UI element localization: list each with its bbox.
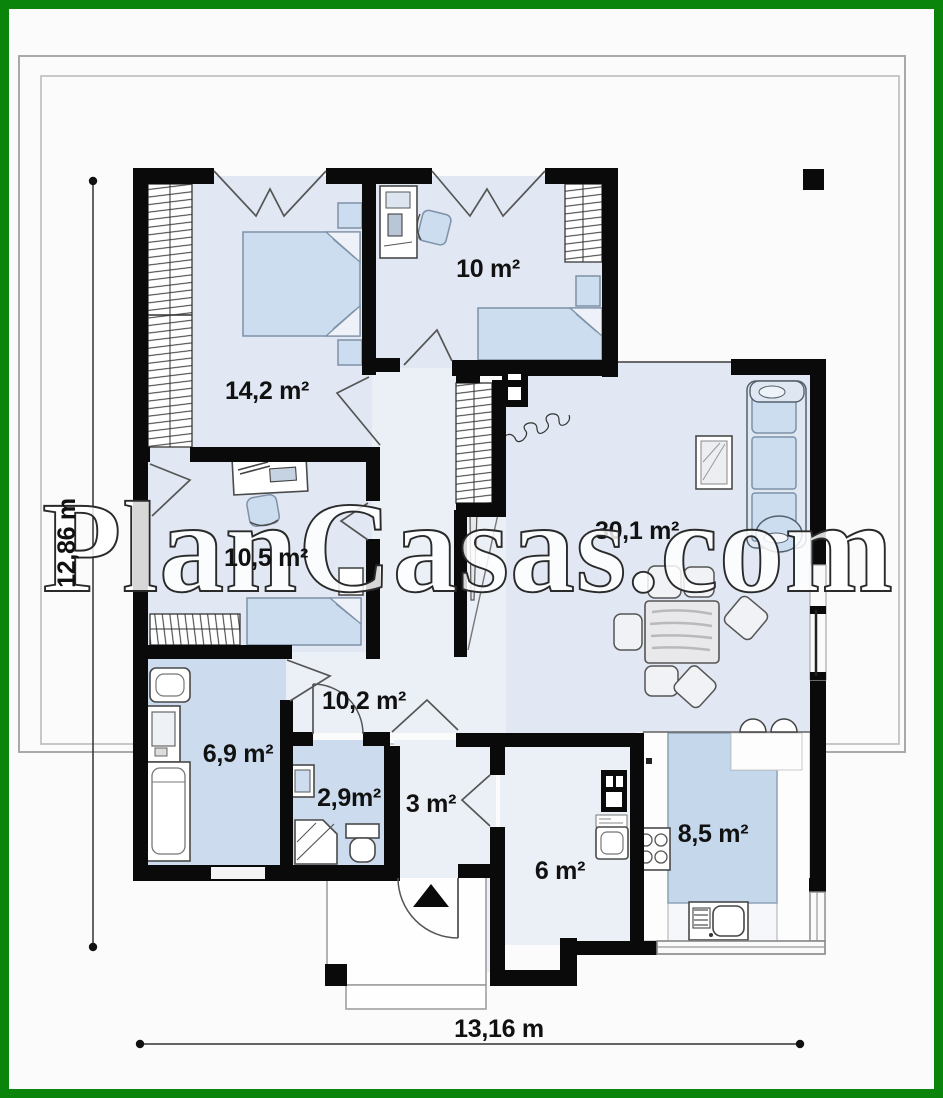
svg-text:13,16 m: 13,16 m (454, 1015, 544, 1043)
svg-text:8,5 m²: 8,5 m² (678, 820, 748, 848)
svg-text:6 m²: 6 m² (535, 857, 585, 885)
svg-text:14,2 m²: 14,2 m² (225, 377, 309, 405)
svg-text:2,9m²: 2,9m² (317, 784, 381, 812)
svg-text:6,9 m²: 6,9 m² (203, 740, 273, 768)
svg-text:3 m²: 3 m² (406, 790, 456, 818)
svg-text:10 m²: 10 m² (456, 255, 520, 283)
svg-text:10,2 m²: 10,2 m² (322, 687, 406, 715)
svg-text:10,5 m²: 10,5 m² (224, 544, 308, 572)
svg-text:12,86 m: 12,86 m (53, 498, 81, 588)
svg-text:PlanCasas.com: PlanCasas.com (42, 476, 894, 620)
